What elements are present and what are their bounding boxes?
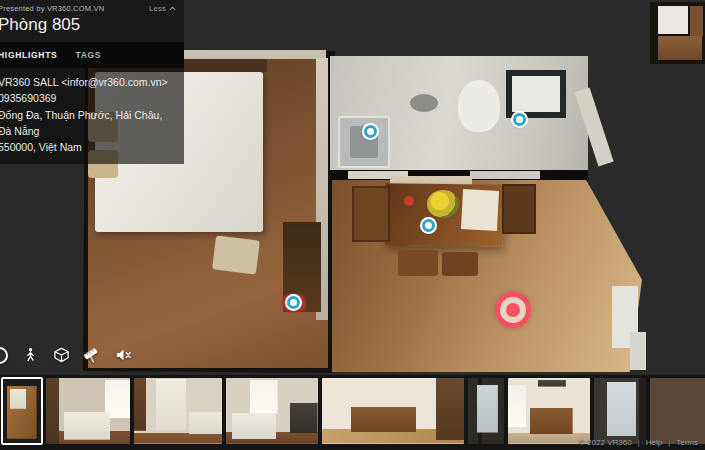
thumb-bedroom-tv[interactable]	[226, 378, 318, 444]
thumb-balcony-view[interactable]	[468, 378, 504, 444]
panel-tabs: HIGHLIGHTSTAGS	[0, 42, 184, 68]
corner-room-bed	[658, 6, 688, 34]
bathroom-drain	[410, 94, 438, 112]
thumb-dining-table[interactable]	[322, 378, 464, 444]
panel-header: Presented by VR360.COM.VN Phòng 805 Less	[0, 0, 184, 42]
collapse-toggle[interactable]: Less	[149, 4, 176, 13]
table-papers	[461, 189, 499, 231]
mode-toolbar	[0, 344, 132, 366]
page-title: Phòng 805	[0, 15, 174, 35]
wall-fragment	[470, 171, 540, 179]
contact-address-1: Đống Đa, Thuận Phước, Hải Châu, Đà Nẵng	[0, 107, 174, 140]
contact-email: VR360 SALL <infor@vr360.com.vn>	[0, 74, 174, 90]
tab-tags[interactable]: TAGS	[75, 50, 101, 60]
red-object	[404, 196, 414, 206]
door	[630, 332, 646, 370]
scan-hotspot[interactable]	[422, 219, 435, 232]
scan-hotspot[interactable]	[513, 113, 526, 126]
footer-link-help[interactable]: Help	[646, 438, 662, 447]
dollhouse-mode-icon[interactable]	[52, 346, 70, 364]
vanity-sink	[506, 70, 566, 118]
footer-link-terms[interactable]: Terms	[676, 438, 698, 447]
collapse-label: Less	[149, 4, 166, 13]
presented-by-text: Presented by VR360.COM.VN	[0, 4, 174, 13]
scan-hotspot[interactable]	[287, 296, 300, 309]
chair	[502, 184, 536, 234]
copyright-text: © 2022 VR360	[579, 438, 632, 447]
contact-address-2: 550000, Việt Nam	[0, 139, 174, 155]
toilet	[458, 80, 500, 132]
chevron-up-icon	[169, 6, 176, 11]
contact-block: VR360 SALL <infor@vr360.com.vn> 09356903…	[0, 68, 184, 164]
bench	[212, 235, 260, 274]
corner-room-floor	[658, 36, 702, 60]
scan-hotspot[interactable]	[364, 125, 377, 138]
thumb-floorplan[interactable]	[2, 378, 42, 444]
speaker-muted-icon[interactable]	[114, 346, 132, 364]
footer-separator: |	[668, 438, 670, 447]
footer-separator: |	[638, 438, 640, 447]
stool	[398, 250, 438, 276]
thumb-bedroom-bed[interactable]	[46, 378, 130, 444]
info-panel: Presented by VR360.COM.VN Phòng 805 Less…	[0, 0, 184, 164]
footer-links: © 2022 VR360|Help|Terms	[579, 438, 698, 447]
thumb-city-window[interactable]	[594, 378, 646, 444]
tab-highlights[interactable]: HIGHLIGHTS	[0, 50, 57, 60]
corner-room-wood	[690, 6, 703, 36]
measure-icon[interactable]	[80, 343, 105, 368]
walk-mode-icon[interactable]	[21, 346, 39, 364]
viewer-window: Presented by VR360.COM.VN Phòng 805 Less…	[0, 0, 705, 450]
cursor-reticle[interactable]	[495, 292, 531, 328]
flower-vase	[427, 190, 459, 218]
thumb-kitchen[interactable]	[650, 378, 705, 444]
thumb-bedroom-wardrobe[interactable]	[134, 378, 222, 444]
contact-phone: 0935690369	[0, 90, 174, 106]
thumb-dining-ac[interactable]	[508, 378, 590, 444]
stool	[442, 252, 478, 276]
chair	[352, 186, 390, 242]
edge-control-icon[interactable]	[0, 347, 8, 364]
bathroom-sink	[338, 116, 390, 168]
